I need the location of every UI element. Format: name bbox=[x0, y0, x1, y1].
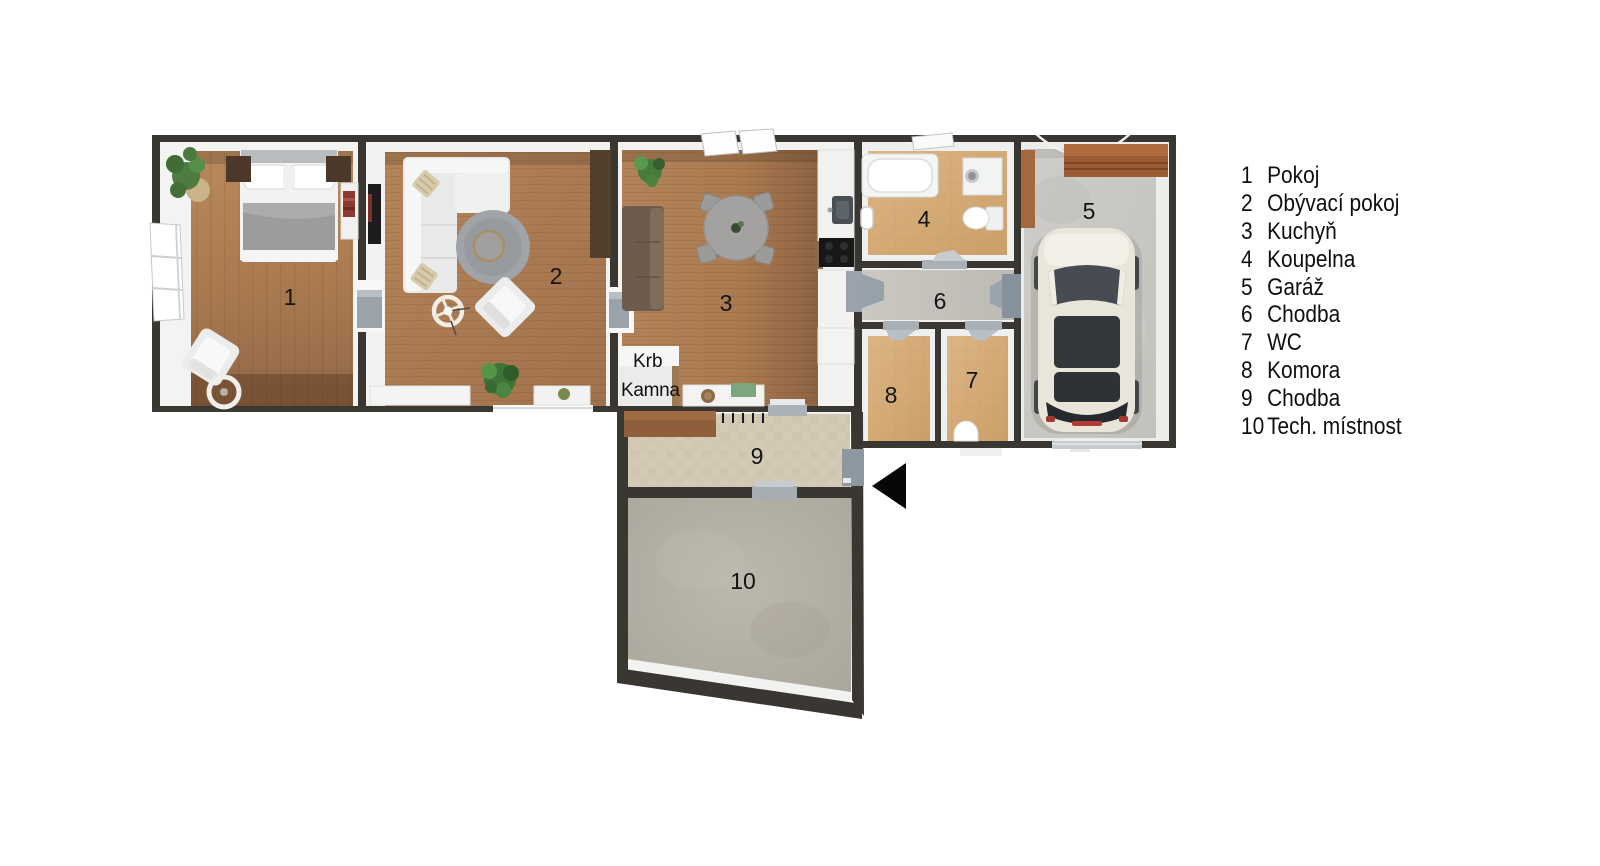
svg-text:3: 3 bbox=[720, 290, 733, 316]
svg-text:5: 5 bbox=[1083, 198, 1096, 224]
svg-text:7: 7 bbox=[966, 367, 979, 393]
svg-text:1: 1 bbox=[284, 284, 297, 310]
svg-text:Kamna: Kamna bbox=[621, 380, 680, 401]
svg-text:9: 9 bbox=[751, 443, 764, 469]
svg-text:10: 10 bbox=[730, 568, 756, 594]
svg-text:8: 8 bbox=[885, 382, 898, 408]
svg-text:Krb: Krb bbox=[633, 351, 663, 372]
svg-text:4: 4 bbox=[918, 206, 931, 232]
svg-text:6: 6 bbox=[934, 288, 947, 314]
svg-text:2: 2 bbox=[550, 263, 563, 289]
